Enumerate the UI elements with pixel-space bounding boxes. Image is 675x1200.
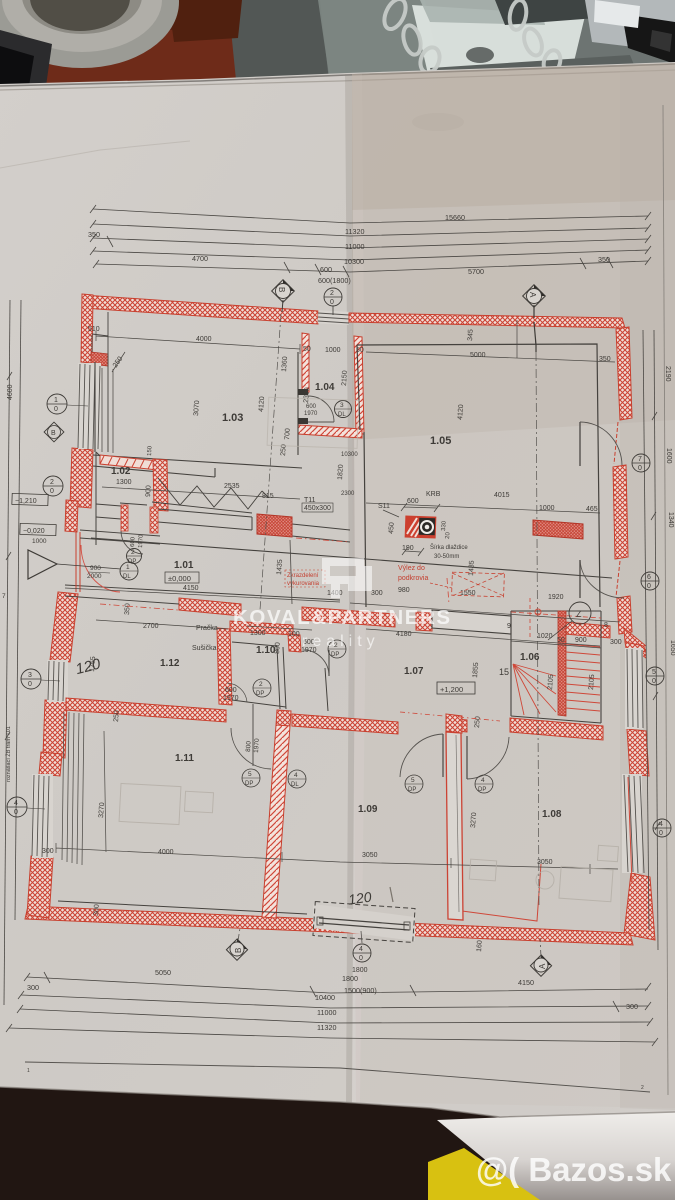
svg-text:1435: 1435 <box>468 560 476 576</box>
svg-text:1.01: 1.01 <box>174 560 194 571</box>
svg-text:4: 4 <box>481 777 485 784</box>
svg-text:3050: 3050 <box>537 859 553 866</box>
svg-text:120: 120 <box>347 888 373 907</box>
svg-text:1000: 1000 <box>325 347 341 354</box>
svg-text:4150: 4150 <box>183 585 199 592</box>
svg-text:A: A <box>528 292 537 298</box>
svg-text:350: 350 <box>124 603 132 615</box>
svg-text:11320: 11320 <box>345 227 364 236</box>
svg-text:1.02: 1.02 <box>111 466 131 477</box>
svg-text:1.08: 1.08 <box>542 809 562 820</box>
svg-text:1.05: 1.05 <box>430 435 451 447</box>
svg-text:10300: 10300 <box>341 452 358 458</box>
svg-text:300: 300 <box>42 848 54 855</box>
svg-text:3070: 3070 <box>193 400 201 416</box>
svg-text:0: 0 <box>659 830 663 837</box>
svg-text:0: 0 <box>50 488 54 495</box>
svg-text:600: 600 <box>306 404 317 410</box>
svg-text:B: B <box>277 287 286 292</box>
svg-text:2: 2 <box>259 681 263 688</box>
svg-text:0: 0 <box>638 465 642 472</box>
svg-text:5700: 5700 <box>468 267 484 276</box>
svg-text:KRB: KRB <box>426 491 441 498</box>
svg-text:465: 465 <box>586 506 598 513</box>
svg-text:DL: DL <box>338 412 346 418</box>
svg-text:20: 20 <box>445 531 451 539</box>
svg-text:1820: 1820 <box>337 464 345 480</box>
svg-text:2105: 2105 <box>547 674 555 690</box>
svg-text:−0,020: −0,020 <box>23 528 45 535</box>
svg-text:9: 9 <box>507 623 511 630</box>
svg-text:1.07: 1.07 <box>404 666 424 677</box>
svg-text:4700: 4700 <box>192 254 208 263</box>
svg-text:1970: 1970 <box>253 738 261 753</box>
svg-text:600: 600 <box>225 687 237 694</box>
svg-text:10400: 10400 <box>315 993 335 1002</box>
svg-text:4150: 4150 <box>518 978 534 987</box>
svg-text:podkrovia: podkrovia <box>398 575 428 582</box>
svg-text:B: B <box>234 948 243 953</box>
svg-text:2535: 2535 <box>224 483 240 490</box>
svg-text:4000: 4000 <box>196 336 212 343</box>
svg-text:4120: 4120 <box>457 404 465 420</box>
svg-text:DL: DL <box>291 782 299 788</box>
svg-text:3270: 3270 <box>470 812 478 828</box>
svg-text:1600: 1600 <box>665 448 672 464</box>
svg-text:2: 2 <box>50 479 54 486</box>
svg-text:0: 0 <box>647 583 651 590</box>
svg-text:6: 6 <box>647 574 651 581</box>
svg-text:roznášací ŽB trám T01: roznášací ŽB trám T01 <box>4 726 12 782</box>
svg-text:15: 15 <box>499 667 509 677</box>
svg-text:600(1800): 600(1800) <box>318 276 351 285</box>
svg-text:1.12: 1.12 <box>160 658 180 669</box>
svg-text:1500(900): 1500(900) <box>344 986 377 995</box>
svg-text:1.11: 1.11 <box>175 753 194 764</box>
svg-text:KOVAL&PARTNERS: KOVAL&PARTNERS <box>233 606 452 629</box>
svg-text:4: 4 <box>359 946 363 953</box>
svg-text:@( Bazos.sk: @( Bazos.sk <box>476 1151 672 1188</box>
svg-text:2: 2 <box>641 1085 644 1091</box>
svg-text:2000: 2000 <box>87 573 102 580</box>
svg-text:450: 450 <box>388 522 396 534</box>
svg-text:1435: 1435 <box>276 559 284 575</box>
svg-text:0: 0 <box>14 809 18 816</box>
svg-text:DP: DP <box>478 787 486 793</box>
svg-text:1300: 1300 <box>250 630 266 637</box>
svg-text:50: 50 <box>356 347 364 354</box>
svg-text:300: 300 <box>27 983 39 992</box>
svg-text:330: 330 <box>441 520 448 531</box>
svg-text:15660: 15660 <box>445 213 465 222</box>
svg-text:800: 800 <box>245 741 253 753</box>
svg-text:1970: 1970 <box>138 534 145 548</box>
svg-text:3050: 3050 <box>362 852 378 859</box>
svg-text:160: 160 <box>476 940 484 952</box>
svg-text:30-50mm: 30-50mm <box>434 554 459 560</box>
svg-text:DP: DP <box>408 787 416 793</box>
svg-text:Pračka: Pračka <box>196 625 218 632</box>
svg-text:50: 50 <box>303 346 311 353</box>
svg-text:100: 100 <box>288 631 300 638</box>
svg-text:1970: 1970 <box>304 411 318 417</box>
svg-text:4: 4 <box>294 772 298 779</box>
svg-text:1650: 1650 <box>669 640 675 656</box>
svg-text:300: 300 <box>610 639 622 646</box>
svg-text:2105: 2105 <box>588 674 596 690</box>
svg-text:5000: 5000 <box>470 352 486 359</box>
svg-text:0: 0 <box>330 299 334 306</box>
svg-text:980: 980 <box>398 587 410 594</box>
svg-text:DP: DP <box>256 691 264 697</box>
svg-text:−1,210: −1,210 <box>15 498 37 505</box>
svg-text:DL: DL <box>123 574 131 580</box>
svg-text:0: 0 <box>359 955 363 962</box>
svg-text:3: 3 <box>340 402 344 409</box>
svg-text:0: 0 <box>28 681 32 688</box>
svg-text:Šírka dlaždice: Šírka dlaždice <box>430 544 468 551</box>
svg-text:7: 7 <box>638 456 642 463</box>
svg-text:700: 700 <box>284 428 292 440</box>
svg-text:900: 900 <box>145 485 153 497</box>
svg-text:4015: 4015 <box>494 492 510 499</box>
svg-text:900: 900 <box>90 565 101 572</box>
svg-text:11320: 11320 <box>317 1023 336 1032</box>
svg-text:0: 0 <box>54 406 58 413</box>
svg-text:350: 350 <box>598 255 610 264</box>
svg-text:8: 8 <box>604 622 608 629</box>
svg-text:11000: 11000 <box>345 242 364 251</box>
svg-text:4: 4 <box>14 800 18 807</box>
svg-text:3: 3 <box>28 672 32 679</box>
svg-text:1.06: 1.06 <box>520 652 540 663</box>
svg-text:250: 250 <box>474 716 482 728</box>
svg-text:1360: 1360 <box>281 356 289 372</box>
svg-text:250: 250 <box>113 710 121 722</box>
svg-text:1.10: 1.10 <box>256 645 276 656</box>
svg-text:+1,200: +1,200 <box>440 685 463 694</box>
svg-text:reality: reality <box>302 633 380 650</box>
svg-text:345: 345 <box>467 329 475 341</box>
svg-text:4: 4 <box>659 821 663 828</box>
svg-text:1.09: 1.09 <box>358 804 378 815</box>
svg-text:10300: 10300 <box>344 257 364 266</box>
svg-text:A: A <box>538 963 547 969</box>
svg-text:1300: 1300 <box>116 479 132 486</box>
svg-text:5: 5 <box>652 669 656 676</box>
svg-text:1: 1 <box>27 1068 30 1074</box>
svg-text:600: 600 <box>407 498 419 505</box>
svg-text:±0,000: ±0,000 <box>168 574 191 583</box>
svg-text:2190: 2190 <box>664 366 671 382</box>
svg-text:DP: DP <box>245 781 253 787</box>
svg-text:Zkrazdelení: Zkrazdelení <box>287 573 319 579</box>
svg-text:1340: 1340 <box>667 512 674 528</box>
svg-text:300: 300 <box>371 590 383 597</box>
svg-text:2300: 2300 <box>341 491 355 497</box>
svg-text:1000: 1000 <box>32 538 47 545</box>
svg-text:4000: 4000 <box>158 849 174 856</box>
svg-text:1855: 1855 <box>472 662 480 678</box>
svg-text:1: 1 <box>54 397 58 404</box>
svg-text:1920: 1920 <box>548 594 564 601</box>
svg-text:B: B <box>51 430 56 437</box>
svg-text:510: 510 <box>88 326 100 333</box>
svg-text:1: 1 <box>126 564 130 571</box>
svg-text:7: 7 <box>2 593 6 600</box>
svg-text:300: 300 <box>626 1002 638 1011</box>
svg-text:4600: 4600 <box>7 384 14 400</box>
svg-text:4120: 4120 <box>258 396 266 412</box>
svg-text:1.04: 1.04 <box>315 382 335 393</box>
svg-text:Sušička: Sušička <box>192 645 217 652</box>
svg-text:5050: 5050 <box>155 968 171 977</box>
svg-text:2: 2 <box>131 549 135 556</box>
svg-text:vykurovania: vykurovania <box>287 581 320 587</box>
svg-text:1970: 1970 <box>223 695 239 702</box>
svg-text:2: 2 <box>330 290 334 297</box>
svg-text:350: 350 <box>88 230 100 239</box>
svg-text:1800: 1800 <box>342 974 358 983</box>
svg-text:Výlez do: Výlez do <box>398 565 425 572</box>
svg-text:900: 900 <box>575 637 587 644</box>
svg-text:1.03: 1.03 <box>222 412 243 424</box>
svg-text:600: 600 <box>320 265 332 274</box>
svg-text:0: 0 <box>652 678 656 685</box>
svg-text:1020: 1020 <box>537 633 553 640</box>
svg-text:1800: 1800 <box>352 967 368 974</box>
svg-text:800: 800 <box>274 642 282 654</box>
svg-text:5: 5 <box>411 777 415 784</box>
svg-text:DP: DP <box>331 652 339 658</box>
svg-text:Z: Z <box>576 609 582 619</box>
svg-text:2300: 2300 <box>303 387 311 403</box>
svg-text:11000: 11000 <box>317 1008 336 1017</box>
svg-text:450x300: 450x300 <box>304 505 331 512</box>
svg-text:5: 5 <box>248 771 252 778</box>
svg-text:2150: 2150 <box>341 370 349 386</box>
svg-text:150: 150 <box>147 445 154 456</box>
svg-text:300: 300 <box>93 904 101 916</box>
